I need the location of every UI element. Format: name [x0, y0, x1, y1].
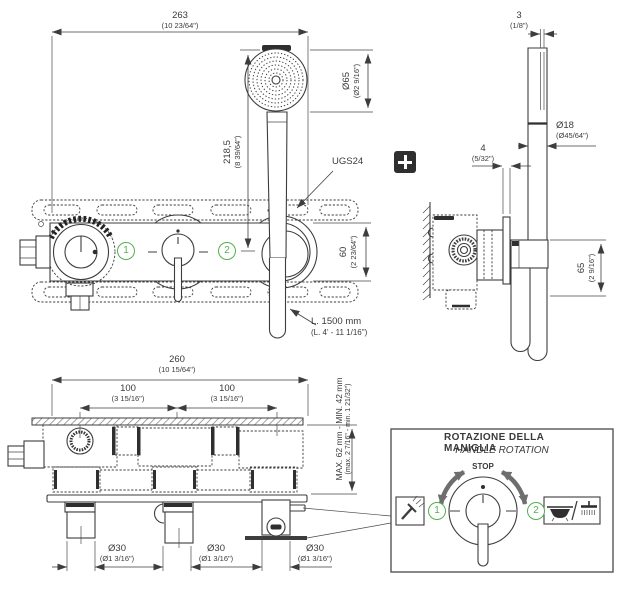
inlet-fitting — [20, 236, 50, 268]
handshower — [267, 112, 287, 258]
dim-outlet-2-diameter: Ø30 (Ø1 3/16") — [199, 544, 233, 564]
dim-height-front: 218,5 (8 39/64") — [223, 136, 243, 169]
shower-head — [245, 45, 307, 111]
rotation-position-1-marker: 1 — [428, 502, 446, 520]
dim-handle-offset: 60 (2 23/64") — [339, 236, 359, 269]
wall-section — [423, 202, 430, 300]
front-view-drawing — [20, 32, 373, 338]
dim-head-diameter: Ø65 (Ø2 9/16") — [342, 64, 362, 98]
dim-rail-diameter: Ø18 (Ø45/64") — [556, 121, 588, 141]
dim-pitch-left: 100 (3 15/16") — [112, 384, 145, 404]
dim-plaster-depth-range: MAX. 62 mm - MIN. 42 mm (max. 2 7/16" - … — [335, 378, 353, 481]
bracket-code-label: UGS24 — [332, 157, 363, 168]
dim-pitch-right: 100 (3 15/16") — [211, 384, 244, 404]
dim-outlet-3-diameter: Ø30 (Ø1 3/16") — [298, 544, 332, 564]
rotation-position-2-marker: 2 — [527, 502, 545, 520]
dim-plate-thickness: 4 (5/32") — [472, 144, 494, 164]
position-2-marker: 2 — [218, 242, 236, 260]
cover-plate — [503, 217, 510, 284]
dim-outlet-1-diameter: Ø30 (Ø1 3/16") — [100, 544, 134, 564]
position-1-marker: 1 — [117, 242, 135, 260]
valve-body — [429, 215, 504, 309]
wall-plate — [32, 418, 303, 425]
dim-overall-width-plan: 260 (10 15/64") — [159, 355, 196, 375]
shower-hose — [270, 258, 286, 338]
technical-drawing-sheet: 263 (10 23/64") 218,5 (8 39/64") Ø65 (Ø2… — [0, 0, 618, 591]
stop-label: STOP — [472, 462, 494, 471]
dim-rail-gap: 3 (1/8") — [510, 11, 528, 31]
plus-icon — [404, 155, 407, 169]
outlet-1 — [65, 502, 95, 544]
outlet-2 — [155, 502, 193, 548]
side-view-drawing — [423, 29, 606, 361]
slide-rail — [528, 48, 547, 361]
rotation-subtitle: HANDLE ROTATION — [455, 445, 549, 456]
dim-handle-height-side: 65 (2 9/16") — [577, 254, 597, 283]
dim-overall-width-front: 263 (10 23/64") — [162, 11, 199, 31]
hose-length-label: L. 1500 mm (L. 4' - 11 1/16") — [311, 317, 367, 337]
ugs24-plus-badge — [394, 151, 416, 173]
detail-leader-lines — [303, 508, 391, 538]
outlet-3-with-handle — [245, 500, 307, 540]
rough-in-body — [8, 425, 303, 492]
line-art — [0, 0, 618, 591]
